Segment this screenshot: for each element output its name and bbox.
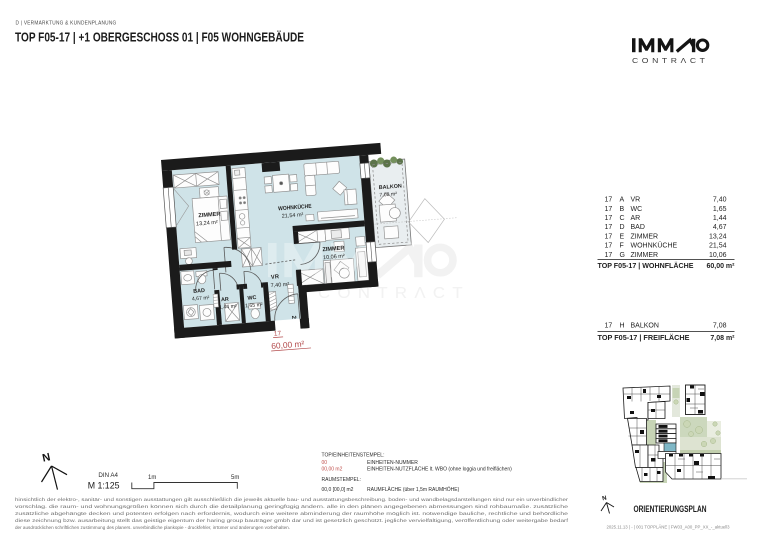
svg-text:13,24: 13,24: [709, 233, 727, 240]
svg-text:VR: VR: [631, 197, 641, 204]
svg-text:ZIMMER: ZIMMER: [631, 233, 659, 240]
svg-text:00: 00: [322, 460, 328, 466]
svg-text:2025.11.13 | - | 001 TOPPLÄNE: 2025.11.13 | - | 001 TOPPLÄNE | FW03_A00…: [607, 525, 731, 530]
svg-text:17: 17: [605, 243, 613, 250]
svg-text:CONTRΛCT: CONTRΛCT: [632, 56, 709, 65]
svg-text:DIN A4: DIN A4: [98, 472, 118, 479]
svg-text:TOP F05-17 | FREIFLÄCHE: TOP F05-17 | FREIFLÄCHE: [598, 334, 690, 342]
svg-text:vorschlag. die raum- und wohnu: vorschlag. die raum- und wohnungsgrößen …: [15, 504, 569, 509]
svg-text:AR: AR: [631, 215, 641, 222]
svg-text:hinsichtlich der elektro-, san: hinsichtlich der elektro-, sanitär- und …: [15, 497, 569, 502]
svg-text:RAUMFLÄCHE (über 1,5m RAUMHÖHE: RAUMFLÄCHE (über 1,5m RAUMHÖHE): [367, 486, 460, 493]
svg-text:1,44: 1,44: [713, 215, 727, 222]
svg-text:EINHEITEN-NUTZFLÄCHE lt. WBO (: EINHEITEN-NUTZFLÄCHE lt. WBO (ohne loggi…: [367, 466, 512, 473]
svg-text:BAD: BAD: [193, 288, 205, 295]
svg-text:BALKON: BALKON: [631, 322, 659, 329]
svg-text:ZIMMER: ZIMMER: [631, 252, 659, 259]
svg-text:diese zeichnung bzw. ausarbeit: diese zeichnung bzw. ausarbeitung stellt…: [15, 518, 569, 523]
svg-text:17: 17: [605, 215, 613, 222]
svg-text:17: 17: [605, 224, 613, 231]
svg-text:17: 17: [605, 252, 613, 259]
svg-text:F: F: [620, 243, 624, 250]
svg-text:A: A: [620, 197, 625, 204]
svg-text:17: 17: [605, 233, 613, 240]
svg-text:E: E: [620, 233, 625, 240]
svg-text:B: B: [620, 206, 625, 213]
svg-text:D | VERMARKTUNG & KUNDENPLANUN: D | VERMARKTUNG & KUNDENPLANUNG: [16, 21, 117, 27]
svg-text:TOP F05-17 | WOHNFLÄCHE: TOP F05-17 | WOHNFLÄCHE: [598, 262, 694, 270]
svg-text:1m: 1m: [148, 475, 156, 481]
svg-text:7,40: 7,40: [713, 197, 727, 204]
svg-text:C: C: [620, 215, 625, 222]
svg-text:EINHEITEN-NUMMER: EINHEITEN-NUMMER: [367, 460, 418, 466]
svg-text:17: 17: [274, 330, 282, 338]
svg-text:AR: AR: [221, 297, 229, 304]
svg-text:5m: 5m: [231, 475, 239, 481]
svg-text:17: 17: [605, 322, 613, 329]
svg-text:M 1:125: M 1:125: [88, 481, 120, 491]
svg-text:1,65: 1,65: [713, 206, 727, 213]
svg-text:4,67: 4,67: [713, 224, 727, 231]
svg-text:zusätzliche abgehängte decken: zusätzliche abgehängte decken und potent…: [15, 511, 569, 516]
svg-text:WC: WC: [631, 206, 643, 213]
svg-text:D: D: [620, 224, 625, 231]
svg-text:TOP F05-17 | +1 OBERGESCHOSS 0: TOP F05-17 | +1 OBERGESCHOSS 01 | F05 WO…: [15, 30, 304, 45]
svg-text:17: 17: [605, 197, 613, 204]
svg-text:WOHNKÜCHE: WOHNKÜCHE: [631, 242, 678, 250]
svg-text:60,00 m²: 60,00 m²: [706, 263, 735, 270]
svg-text:der ausdrücklichen schriftlich: der ausdrücklichen schriftlichen zustimm…: [15, 525, 290, 530]
svg-text:WC: WC: [247, 295, 257, 302]
svg-text:17: 17: [605, 206, 613, 213]
svg-text:7,08 m²: 7,08 m²: [710, 335, 735, 342]
svg-text:00,00 m2: 00,00 m2: [322, 467, 343, 473]
svg-text:ORIENTIERUNGSPLAN: ORIENTIERUNGSPLAN: [634, 504, 707, 514]
svg-text:21,54: 21,54: [709, 243, 727, 250]
svg-text:RAUMSTEMPEL:: RAUMSTEMPEL:: [322, 477, 361, 483]
svg-text:10,06: 10,06: [709, 252, 727, 259]
svg-text:TOP/EINHEITENSTEMPEL:: TOP/EINHEITENSTEMPEL:: [322, 453, 385, 459]
svg-text:BAD: BAD: [631, 224, 645, 231]
svg-text:G: G: [620, 252, 625, 259]
svg-text:00,0 [00,0] m2: 00,0 [00,0] m2: [322, 487, 354, 493]
svg-text:H: H: [620, 322, 625, 329]
svg-text:VR: VR: [271, 274, 280, 281]
svg-text:7,08: 7,08: [713, 322, 727, 329]
